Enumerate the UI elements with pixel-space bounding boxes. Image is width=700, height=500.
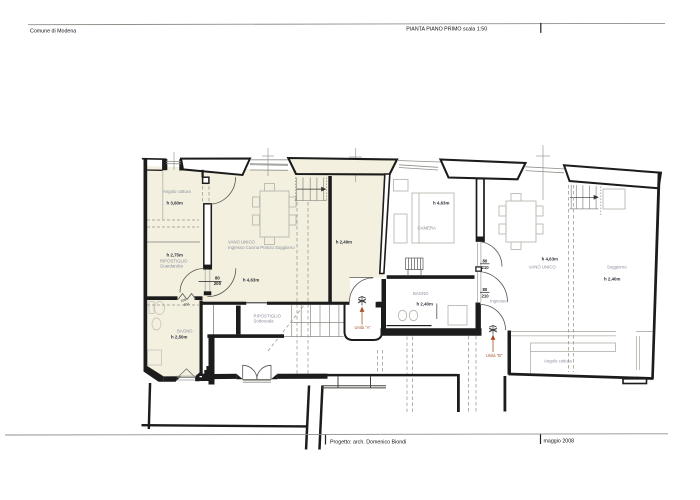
svg-text:Unità "B": Unità "B": [486, 353, 503, 358]
svg-text:VANO UNICO: VANO UNICO: [228, 240, 256, 245]
svg-text:PIANTA PIANO PRIMO scala 1:50: PIANTA PIANO PRIMO scala 1:50: [406, 27, 487, 33]
svg-text:h 4,63m: h 4,63m: [542, 257, 558, 262]
svg-text:Unità "A": Unità "A": [355, 325, 372, 330]
svg-text:Guardaroba: Guardaroba: [160, 264, 184, 269]
svg-text:Sottoscala: Sottoscala: [254, 319, 275, 324]
svg-text:Soggiorno: Soggiorno: [607, 265, 627, 270]
svg-text:CAMERA: CAMERA: [418, 226, 437, 231]
svg-text:80: 80: [483, 287, 488, 292]
svg-text:h 2,75m: h 2,75m: [167, 253, 183, 258]
svg-text:h 4,63m: h 4,63m: [243, 278, 259, 283]
svg-text:h 2,40m: h 2,40m: [604, 277, 620, 282]
svg-text:BAGNO: BAGNO: [177, 329, 193, 334]
svg-text:Angolo cottura: Angolo cottura: [163, 189, 191, 194]
svg-text:h 2,40m: h 2,40m: [336, 240, 352, 245]
svg-text:80: 80: [483, 259, 488, 264]
svg-text:80: 80: [215, 276, 220, 281]
svg-text:210: 210: [482, 294, 490, 299]
svg-text:VANO UNICO: VANO UNICO: [529, 265, 557, 270]
svg-text:210: 210: [482, 265, 490, 270]
svg-text:Ingresso: Ingresso: [490, 299, 507, 304]
svg-text:h 2,40m: h 2,40m: [417, 302, 433, 307]
svg-text:Ingresso Cucina Pranzo Soggior: Ingresso Cucina Pranzo Soggiorno: [228, 245, 295, 250]
svg-text:h 4,63m: h 4,63m: [433, 201, 449, 206]
svg-text:h 3,60m: h 3,60m: [167, 201, 183, 206]
svg-text:Progetto: arch. Domenico Bion: Progetto: arch. Domenico Biondi: [330, 440, 406, 446]
svg-text:maggio 2008: maggio 2008: [544, 439, 575, 445]
svg-text:BAGNO: BAGNO: [413, 291, 429, 296]
svg-text:h 2,50m: h 2,50m: [171, 335, 187, 340]
svg-text:Comune di Modena: Comune di Modena: [30, 28, 76, 34]
svg-text:Angolo cottura: Angolo cottura: [544, 359, 572, 364]
